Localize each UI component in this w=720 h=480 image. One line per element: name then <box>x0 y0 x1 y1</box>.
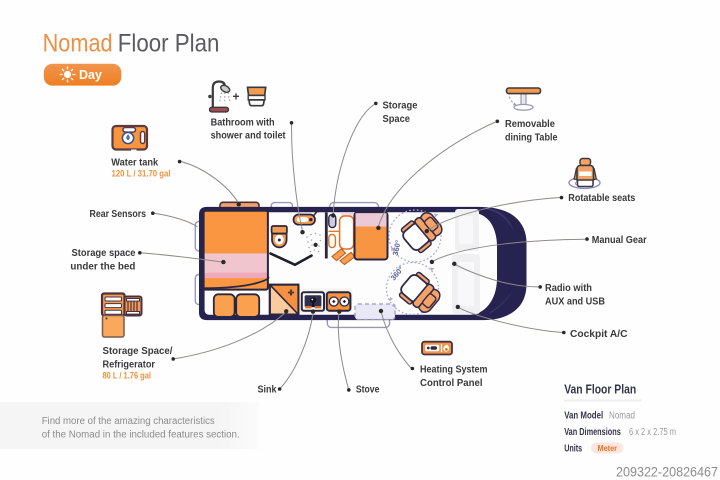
svg-text:AUX and USB: AUX and USB <box>545 295 605 307</box>
svg-text:Van Model: Van Model <box>564 410 603 421</box>
svg-text:Removable: Removable <box>505 118 555 130</box>
svg-text:under the bed: under the bed <box>70 260 135 272</box>
svg-text:Find more of the amazing chara: Find more of the amazing characteristics <box>42 416 215 427</box>
svg-text:6 x 2 x 2.75 m: 6 x 2 x 2.75 m <box>629 427 676 438</box>
svg-text:Control Panel: Control Panel <box>420 377 483 389</box>
svg-text:Floor Plan: Floor Plan <box>118 30 220 58</box>
svg-text:Storage: Storage <box>383 100 418 112</box>
svg-text:Van Floor Plan: Van Floor Plan <box>564 382 636 397</box>
svg-text:Cockpit A/C: Cockpit A/C <box>570 328 628 340</box>
svg-text:shower and toilet: shower and toilet <box>211 130 286 142</box>
svg-text:Stove: Stove <box>356 383 380 395</box>
svg-text:Heating System: Heating System <box>420 364 488 376</box>
svg-text:Nomad: Nomad <box>609 410 635 421</box>
svg-text:Refrigerator: Refrigerator <box>103 358 156 370</box>
svg-text:Meter: Meter <box>598 444 618 453</box>
svg-text:Radio with: Radio with <box>545 282 592 294</box>
svg-text:209322-20826467: 209322-20826467 <box>616 464 718 480</box>
svg-text:Bathroom with: Bathroom with <box>211 116 275 128</box>
svg-text:Nomad: Nomad <box>43 30 113 58</box>
svg-text:80 L / 1.76 gal: 80 L / 1.76 gal <box>103 371 152 382</box>
svg-text:Van Dimensions: Van Dimensions <box>564 427 621 438</box>
svg-text:of the Nomad in the included f: of the Nomad in the included features se… <box>42 430 240 441</box>
svg-text:120 L / 31.70 gal: 120 L / 31.70 gal <box>112 169 171 180</box>
svg-text:dining Table: dining Table <box>505 131 558 143</box>
svg-text:Day: Day <box>79 68 102 82</box>
svg-text:Storage space: Storage space <box>72 247 136 259</box>
svg-text:Water tank: Water tank <box>111 157 158 169</box>
svg-text:+: + <box>233 90 240 104</box>
svg-text:Rear Sensors: Rear Sensors <box>90 208 147 220</box>
svg-text:Manual Gear: Manual Gear <box>592 234 647 246</box>
svg-text:Space: Space <box>383 113 411 125</box>
svg-text:Storage Space/: Storage Space/ <box>103 345 173 357</box>
svg-text:Rotatable seats: Rotatable seats <box>568 192 635 204</box>
svg-text:Units: Units <box>564 444 582 455</box>
svg-text:Sink: Sink <box>258 383 277 395</box>
